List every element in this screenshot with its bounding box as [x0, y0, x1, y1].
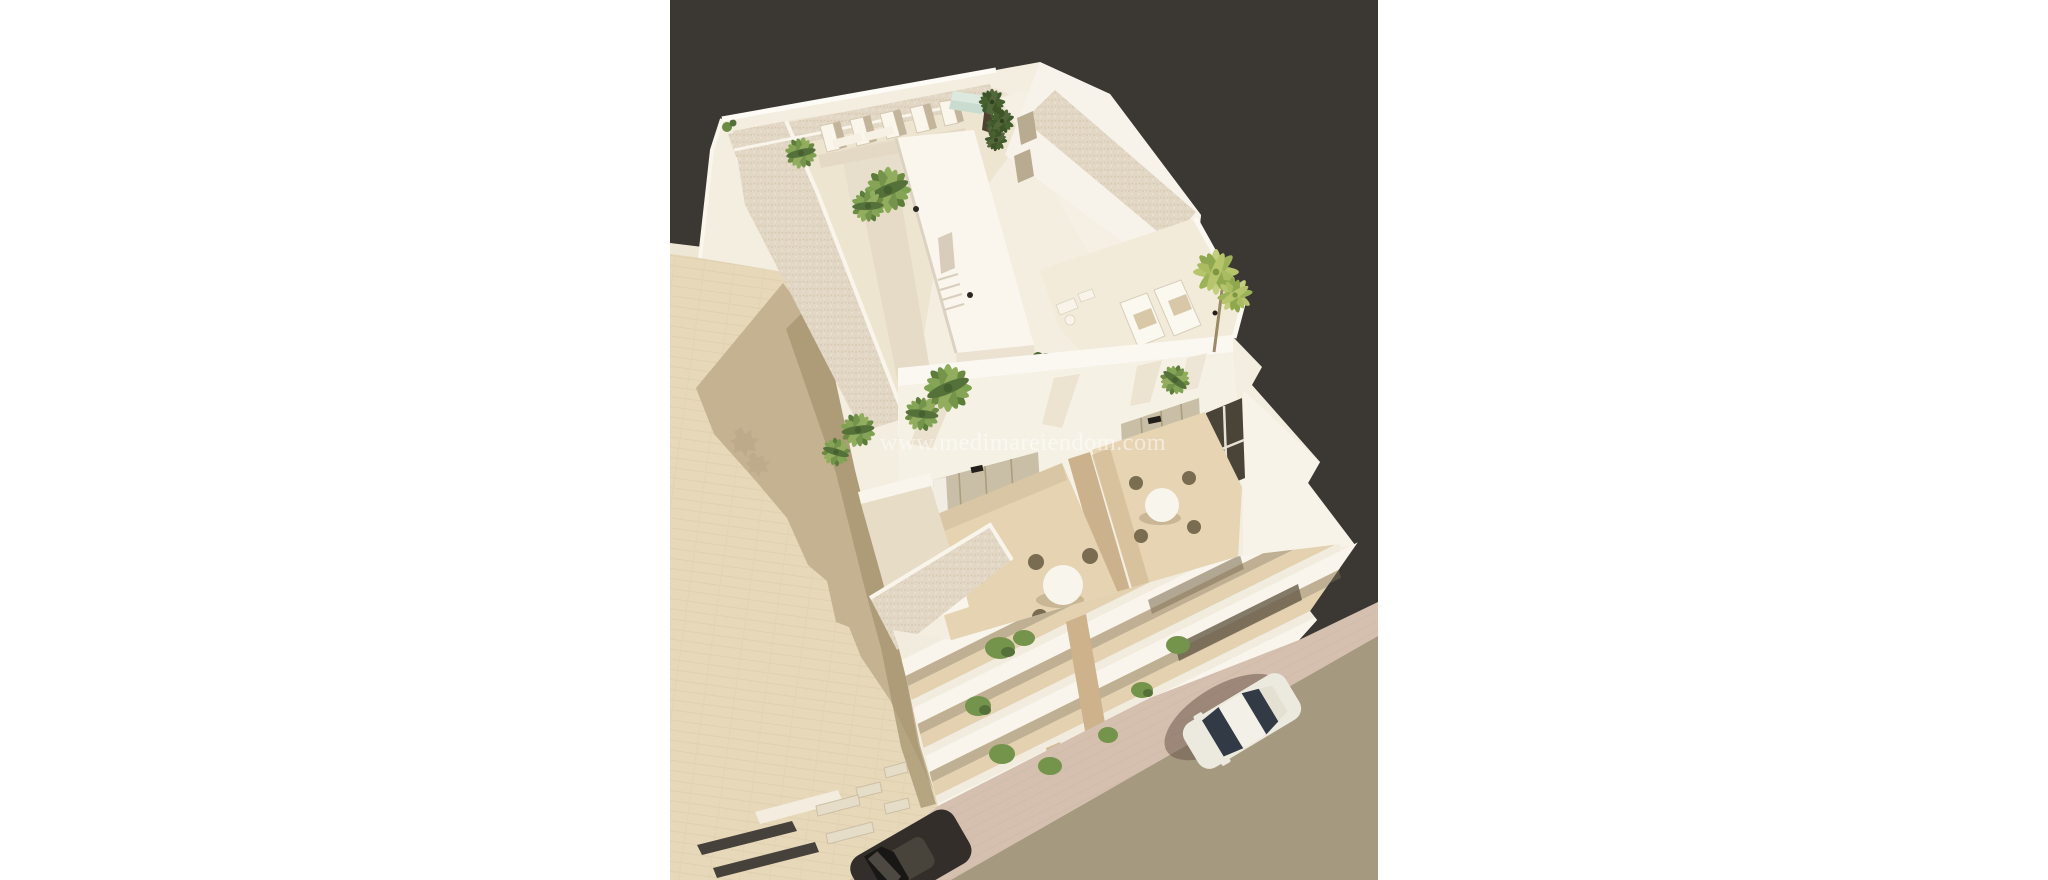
- svg-text:www.medimareiendom.com: www.medimareiendom.com: [880, 429, 1166, 456]
